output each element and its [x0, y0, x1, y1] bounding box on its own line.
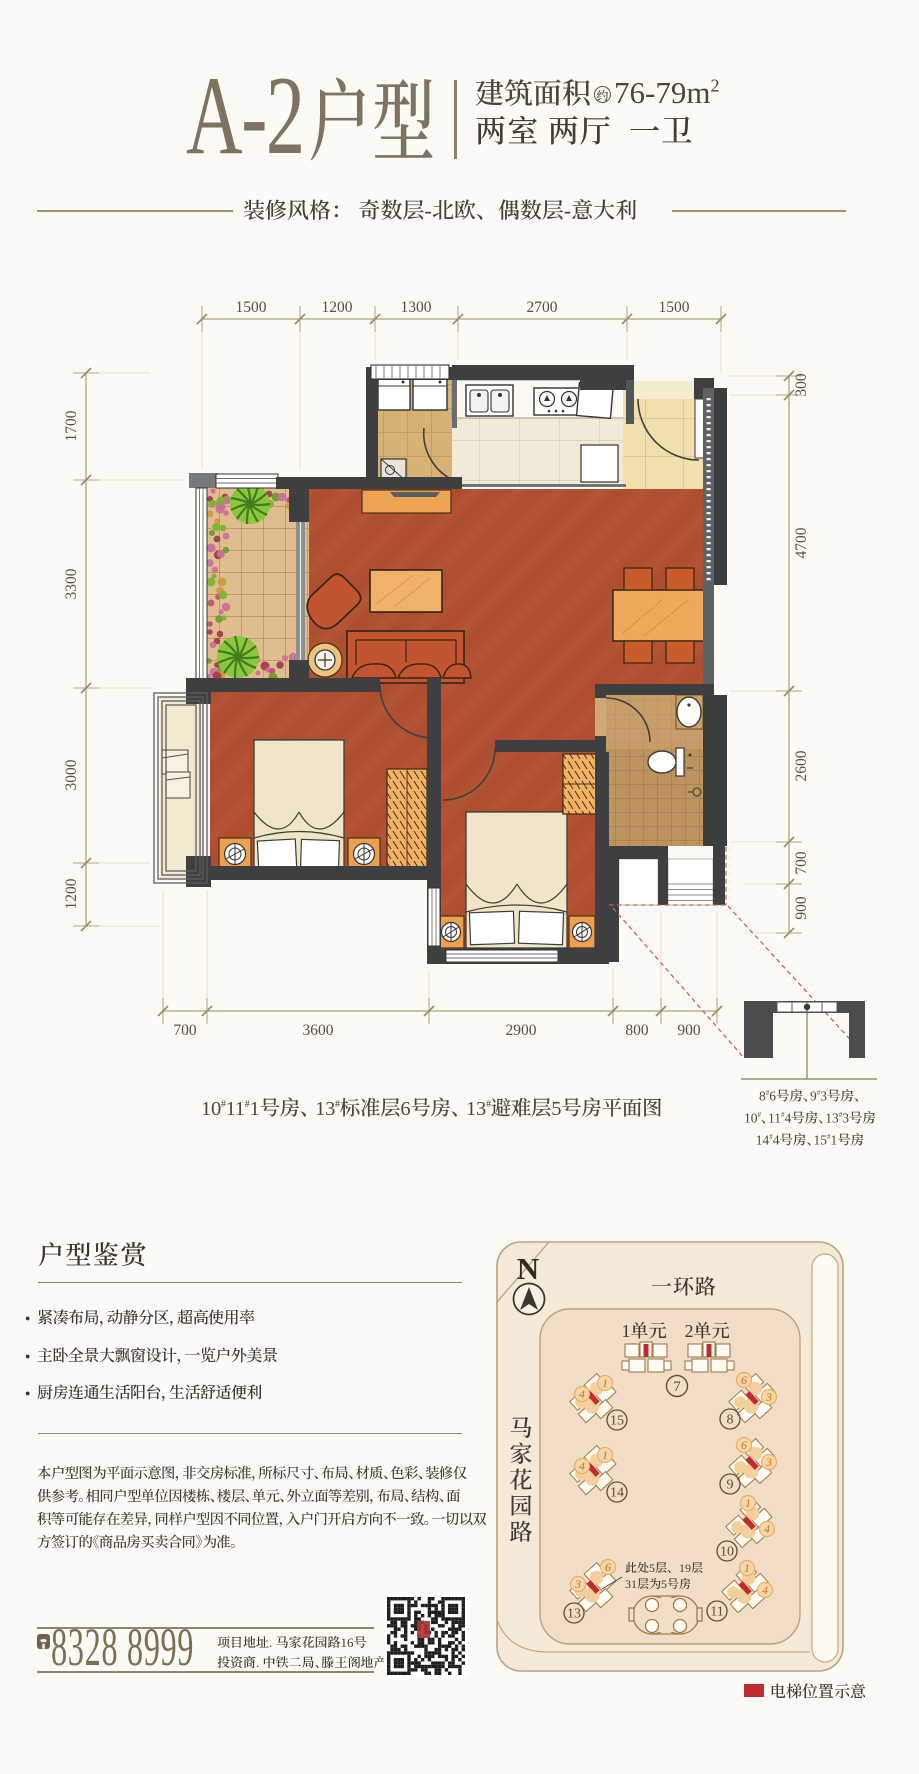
- svg-text:3: 3: [765, 1390, 772, 1404]
- svg-text:6: 6: [741, 1373, 747, 1387]
- svg-text:4: 4: [579, 1459, 585, 1473]
- svg-text:1: 1: [745, 1496, 751, 1510]
- svg-text:7: 7: [673, 1379, 681, 1395]
- svg-text:1单元: 1单元: [622, 1317, 667, 1343]
- svg-text:3: 3: [574, 1577, 581, 1591]
- svg-text:路: 路: [510, 1514, 533, 1547]
- svg-text:电梯位置示意: 电梯位置示意: [770, 1679, 866, 1702]
- svg-text:4: 4: [764, 1522, 770, 1536]
- svg-text:1: 1: [602, 1448, 608, 1462]
- svg-text:3: 3: [765, 1455, 772, 1469]
- svg-text:9: 9: [727, 1478, 734, 1493]
- svg-text:6: 6: [741, 1438, 747, 1452]
- svg-text:1: 1: [602, 1376, 608, 1390]
- svg-text:2单元: 2单元: [685, 1317, 730, 1343]
- svg-text:N: N: [517, 1251, 539, 1286]
- svg-text:13: 13: [567, 1607, 581, 1622]
- svg-text:10: 10: [720, 1545, 734, 1560]
- svg-text:4: 4: [579, 1387, 585, 1401]
- svg-text:1: 1: [744, 1561, 750, 1575]
- svg-text:一环路: 一环路: [651, 1271, 717, 1301]
- svg-text:14: 14: [610, 1486, 624, 1501]
- svg-text:8: 8: [727, 1413, 734, 1428]
- svg-text:此处5层、19层: 此处5层、19层: [624, 1559, 703, 1576]
- svg-text:31层为5号房: 31层为5号房: [625, 1575, 691, 1592]
- svg-text:4: 4: [762, 1583, 768, 1597]
- svg-text:15: 15: [610, 1414, 624, 1429]
- svg-text:11: 11: [710, 1605, 723, 1620]
- svg-text:6: 6: [605, 1560, 611, 1574]
